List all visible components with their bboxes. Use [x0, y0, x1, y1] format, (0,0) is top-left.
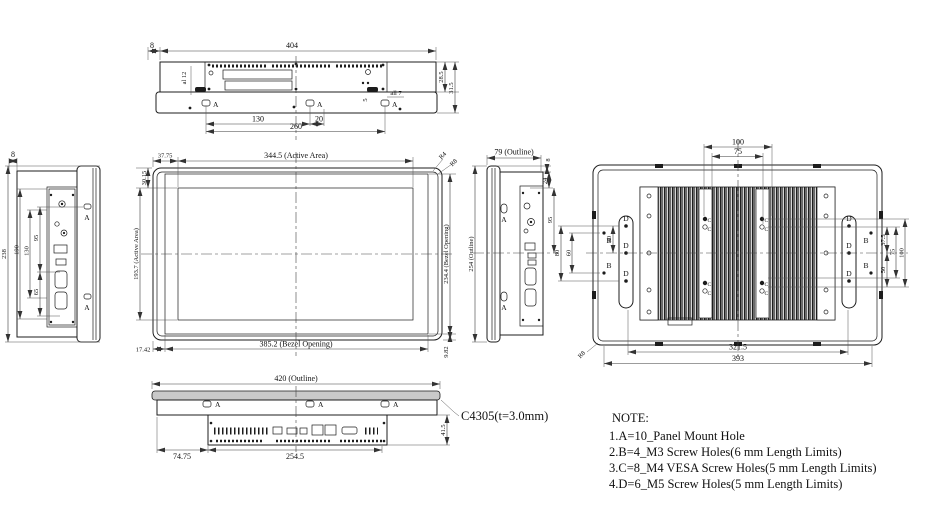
dim-right-95: 95: [547, 217, 554, 224]
dim-front-active-w: 344.5 (Active Area): [264, 151, 328, 160]
dim-front-bezel-w: 385.2 (Bezel Opening): [259, 340, 332, 349]
left-io-column: [47, 187, 77, 327]
dim-top-hole12: al 12: [181, 72, 188, 85]
hole-label-a: A: [318, 400, 324, 409]
top-panel-mount-holes: [189, 100, 402, 110]
dim-rear-60: 60: [566, 250, 573, 257]
top-slot-2: [225, 81, 292, 90]
callout-text: C4305(t=3.0mm): [461, 409, 548, 423]
dim-right-24: 24: [542, 177, 549, 184]
hole-label-a: A: [317, 100, 323, 109]
right-mount-hole: [501, 204, 507, 213]
dim-rear-37-5: 37.5: [880, 234, 887, 245]
drawing-sheet: 404 8 al 12 28.5 31.5 all 7 5 130 20 260…: [0, 0, 931, 521]
hole-label-d: D: [846, 214, 852, 223]
hole-label-a: A: [501, 215, 507, 224]
hole-label-d: D: [846, 241, 852, 250]
hole-label-c: C: [765, 291, 769, 297]
hole-label-a: A: [215, 400, 221, 409]
dim-top-h285: 28.5: [438, 71, 445, 82]
dim-rear-393: 393: [732, 354, 744, 363]
dim-rear-100: 100: [732, 138, 744, 147]
dim-front-active-h: 193.7 (Active Area): [133, 228, 140, 280]
dim-rear-321-5: 321.5: [729, 343, 747, 352]
left-side-view: A A 8 238 190 130 95 65: [1, 150, 100, 342]
bottom-mount-hole: [381, 401, 389, 407]
dim-right-outline-w: 79 (Outline): [494, 148, 534, 157]
front-view: 37.75 344.5 (Active Area) 30.15 193.7 (A…: [133, 150, 459, 357]
hole-label-a: A: [213, 100, 219, 109]
hole-label-b: B: [863, 261, 868, 270]
dim-front-17-42: 17.42: [136, 347, 151, 354]
note-line-2: 2.B=4_M3 Screw Holes(6 mm Length Limits): [609, 445, 842, 459]
right-side-view: A A 79 (Outline) 8 24 95 254 (Outline): [468, 148, 558, 343]
hole-label-d: D: [623, 214, 629, 223]
left-mount-hole: [84, 204, 91, 209]
hole-label-c: C: [765, 218, 769, 224]
right-io-column: [520, 186, 543, 326]
dim-top-s130: 130: [252, 115, 264, 124]
dim-front-bezel-h: 234.4 (Bezel Opening): [443, 224, 450, 283]
dim-front-r4: R4: [438, 150, 449, 161]
left-connectors: [50, 194, 74, 323]
dim-top-width: 404: [286, 41, 298, 50]
hole-label-a: A: [84, 303, 90, 312]
dim-bottom-outline: 420 (Outline): [274, 374, 318, 383]
dim-front-37-75: 37.75: [158, 153, 173, 160]
dim-front-9-82: 9.82: [443, 346, 450, 357]
dim-top-s260: 260: [290, 122, 302, 131]
top-view: 404 8 al 12 28.5 31.5 all 7 5 130 20 260…: [148, 41, 459, 140]
dim-top-h315: 31.5: [448, 82, 455, 93]
hole-label-c: C: [765, 227, 769, 233]
dim-top-edge: 8: [150, 41, 154, 50]
hole-label-b: B: [606, 261, 611, 270]
rear-slot-left: [619, 216, 633, 308]
dim-left-95: 95: [33, 235, 40, 242]
bottom-view: A A A 420 (Outline): [152, 374, 548, 461]
hole-label-d: D: [623, 269, 629, 278]
hole-label-a: A: [393, 400, 399, 409]
dim-left-130: 130: [24, 246, 31, 256]
dim-right-e8: 8: [545, 158, 552, 161]
note-line-1: 1.A=10_Panel Mount Hole: [609, 429, 745, 443]
rear-slot-right: [842, 216, 856, 308]
notes: NOTE: 1.A=10_Panel Mount Hole 2.B=4_M3 S…: [609, 411, 877, 491]
dim-left-238: 238: [1, 249, 8, 259]
note-line-4: 4.D=6_M5 Screw Holes(5 mm Length Limits): [609, 477, 842, 491]
callout-leader: [441, 400, 459, 416]
dim-rear-50: 50: [880, 267, 887, 274]
hole-label-c: C: [708, 227, 712, 233]
hole-label-c: C: [708, 282, 712, 288]
dim-right-outline-h: 254 (Outline): [468, 236, 475, 271]
hole-label-c: C: [708, 218, 712, 224]
rear-vesa-channel-left: [699, 189, 712, 318]
hole-label-c: C: [708, 291, 712, 297]
dim-left-65: 65: [33, 289, 40, 296]
dim-rear-80: 80: [554, 250, 561, 257]
top-slot-1: [223, 70, 292, 79]
rear-vesa-channel-right: [756, 189, 769, 318]
hole-label-a: A: [392, 100, 398, 109]
dim-rear-40: 40: [606, 236, 613, 243]
right-mount-hole: [501, 292, 507, 301]
hole-label-d: D: [623, 241, 629, 250]
left-mount-hole: [84, 294, 91, 299]
bottom-connectors: [210, 422, 386, 443]
hole-label-a: A: [501, 303, 507, 312]
dim-top-s20: 20: [315, 115, 323, 124]
dim-top-hole7: all 7: [390, 90, 402, 97]
hole-label-a: A: [84, 213, 90, 222]
hole-label-d: D: [846, 269, 852, 278]
left-panel: [77, 166, 100, 342]
right-connectors: [522, 192, 540, 321]
bottom-mount-hole: [306, 401, 314, 407]
note-heading: NOTE:: [612, 411, 649, 425]
dim-front-r8: R8: [449, 158, 459, 168]
dim-bottom-254-5: 254.5: [286, 452, 304, 461]
hole-label-c: C: [765, 282, 769, 288]
right-panel: [487, 166, 500, 342]
note-line-3: 3.C=8_M4 VESA Screw Holes(5 mm Length Li…: [609, 461, 877, 475]
dim-bottom-41-5: 41.5: [440, 424, 447, 435]
dim-rear-r75: 75: [890, 249, 897, 256]
dim-rear-r100: 100: [899, 248, 906, 258]
rear-view: C C C C C C C C D D D D D D B B B B: [554, 138, 909, 368]
dim-bottom-74-75: 74.75: [173, 452, 191, 461]
dim-rear-75: 75: [734, 147, 742, 156]
hole-label-b: B: [863, 236, 868, 245]
dim-top-hole5: 5: [362, 98, 369, 101]
dim-left-190: 190: [14, 245, 21, 255]
rear-rail-left: [640, 187, 658, 320]
rear-rail-right: [817, 187, 835, 320]
dim-rear-r8: R8: [577, 350, 587, 360]
dim-left-e8: 8: [11, 150, 15, 159]
dim-front-30-15: 30.15: [141, 171, 148, 186]
bottom-mount-hole: [203, 401, 211, 407]
rear-heatsink: [640, 187, 835, 320]
